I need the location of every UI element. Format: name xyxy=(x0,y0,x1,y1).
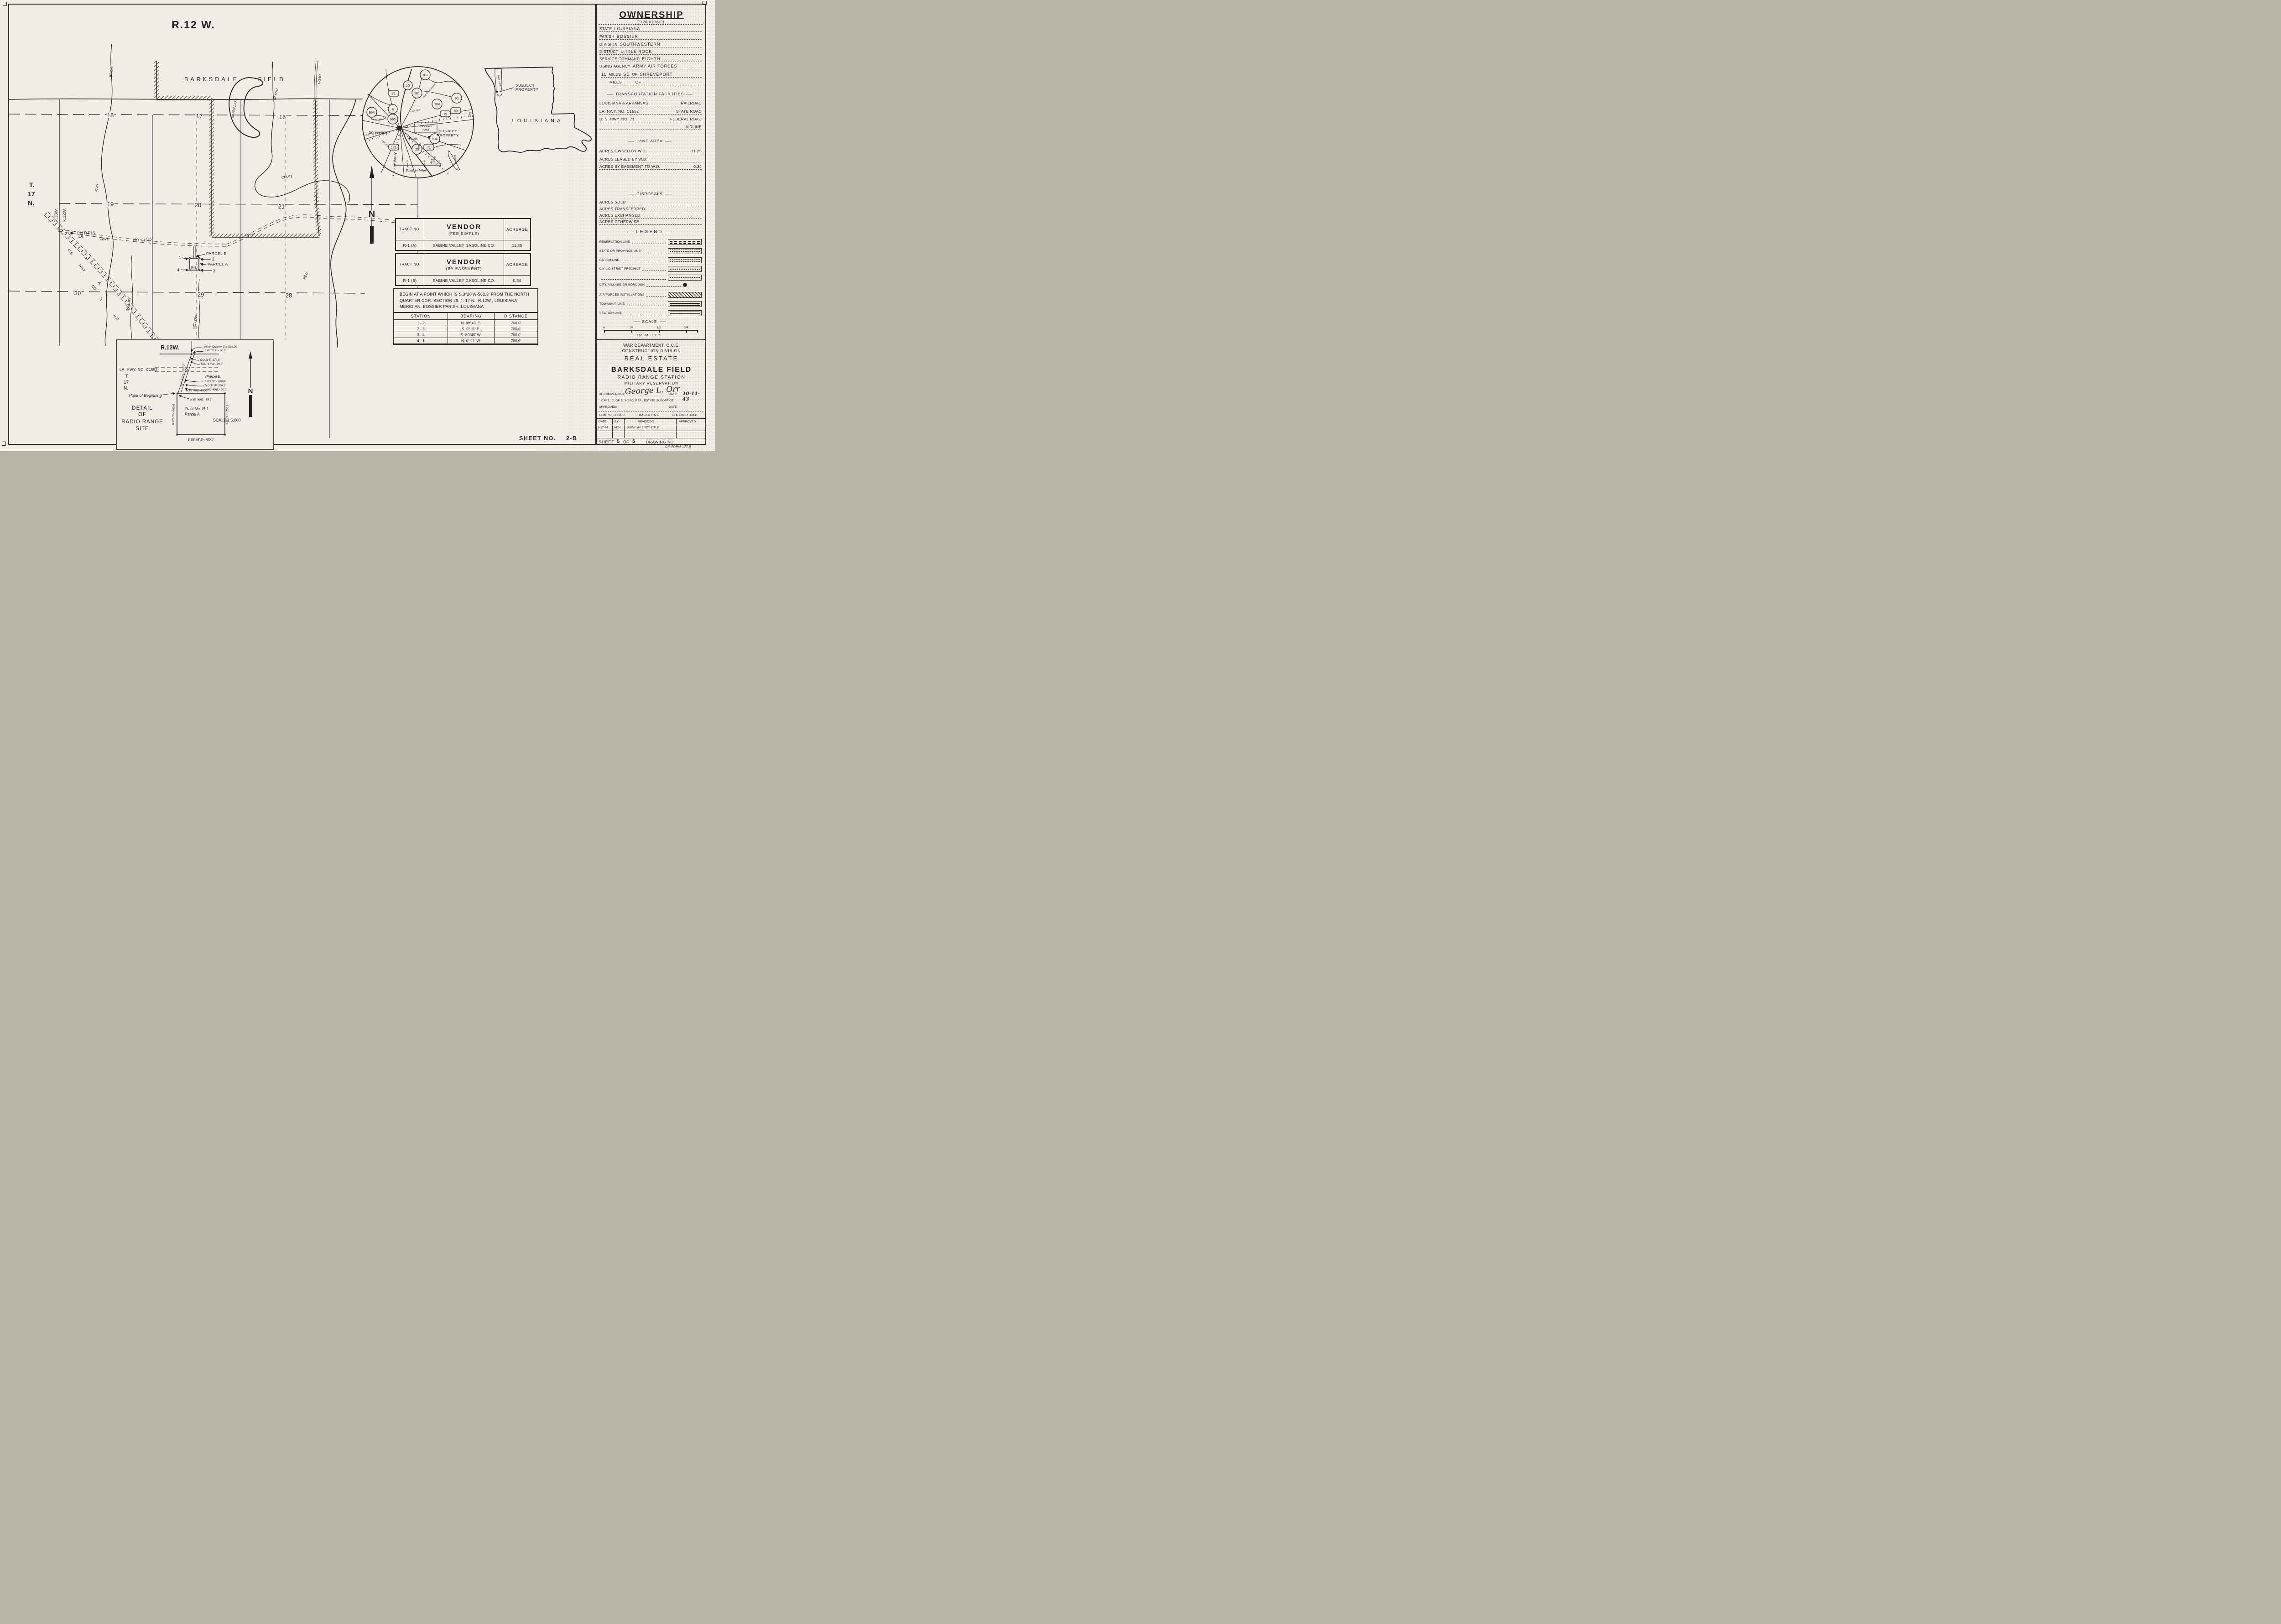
la-hwy-label: HWY. xyxy=(100,237,109,241)
route-shield-994: 994 xyxy=(369,110,375,115)
land-area-header: LAND AREA xyxy=(636,139,662,143)
distance-cell: 700.0' xyxy=(495,338,537,344)
corner-label: 1 xyxy=(179,255,181,260)
us-hwy-label: HWY. xyxy=(78,264,87,273)
field-label: DIVISION xyxy=(599,42,618,47)
field-label: DISTRICT xyxy=(599,49,618,54)
construction-division-line: CONSTRUCTION DIVISION xyxy=(597,349,706,353)
detail-inset: R.12W. North Quarter Cor.Sec.29 S.88°21'… xyxy=(116,340,274,449)
section-number: 18 xyxy=(107,112,114,119)
field-label: USING AGENCY xyxy=(599,64,630,68)
township-label: 17 xyxy=(28,190,35,198)
type-of-map-subtitle: (TYPE OF MAP) xyxy=(599,21,703,25)
detail-tract-label: Parcel A xyxy=(185,412,200,416)
of-word: OF xyxy=(632,72,637,77)
disposal-label: ACRES OTHERWISE xyxy=(599,219,639,224)
sheet-number-value: 5 xyxy=(617,439,620,444)
detail-annotation: S.0°11'E.-274.5' xyxy=(200,358,221,362)
field-value: SOUTHWESTERN xyxy=(620,42,661,47)
disposal-label: ACRES TRANSFERRED xyxy=(599,207,645,211)
land-area-header-row: LAND AREA xyxy=(597,139,703,143)
distance-miles-value: 11 xyxy=(601,72,606,77)
detail-bearing-left: N.0°11'W.-700.0' xyxy=(171,403,176,425)
legend-header-row: LEGEND xyxy=(597,229,703,234)
disposal-label: ACRES SOLD xyxy=(599,200,625,204)
detail-township-label: T. xyxy=(125,374,129,379)
metes-description: BEGIN AT A POINT WHICH IS S.3°20'W-563.3… xyxy=(394,289,537,312)
land-area-label: ACRES LEASED BY W.D. xyxy=(599,157,647,161)
corner-label: 3 xyxy=(213,269,215,273)
bearing-cell: N. 89°49' E. xyxy=(448,320,495,326)
military-reservation-line: MILITARY RESERVATION xyxy=(597,381,706,385)
vendor-fee-simple-table: TRACT NO. VENDOR (FEE SIMPLE) ACREAGE R-… xyxy=(395,218,531,251)
field-label: STATE xyxy=(599,26,612,31)
section-number: 21 xyxy=(278,203,285,210)
transport-type: RAILROAD xyxy=(681,101,702,105)
revisions-approved-header: APPROVED xyxy=(679,420,696,423)
real-estate-title: REAL ESTATE xyxy=(597,355,706,362)
distance-cell: 700.0' xyxy=(495,320,537,326)
of-word: OF xyxy=(635,80,641,84)
acreage-cell: 0.34 xyxy=(504,276,530,285)
approved-label: APPROVED: xyxy=(599,406,617,409)
distance-cell: 700.0' xyxy=(495,332,537,338)
acreage-cell: 11.25 xyxy=(504,240,530,250)
legend-label: STATE OR PROVINCE LINE xyxy=(599,250,641,253)
township-label: T. xyxy=(29,181,34,188)
revision-date: 3-17-44 xyxy=(598,426,608,429)
railroad-label: A. xyxy=(97,281,102,286)
vendor-header-sub: (FEE SIMPLE) xyxy=(448,231,479,236)
flat-label: FLAT xyxy=(94,182,100,192)
vendor-cell: SABINE VALLEY GASOLINE CO. xyxy=(424,276,504,285)
bayou-label: BAYOU xyxy=(273,88,279,100)
corner-label: 2 xyxy=(212,257,214,261)
sheet-no-value: 2-B xyxy=(566,435,578,442)
field-value: LOUISIANA xyxy=(615,26,641,31)
us-hwy-label: NO. xyxy=(90,284,98,292)
disposal-label: ACRES EXCHANGED xyxy=(599,213,640,218)
section-number: 16 xyxy=(279,114,286,120)
vendor-cell: SABINE VALLEY GASOLINE CO. xyxy=(424,240,504,250)
field-value: LITTLE ROCK xyxy=(620,49,652,54)
signature-underline xyxy=(599,398,703,398)
detail-bearing-bottom: S.89°49'W.- 700.0' xyxy=(187,438,214,442)
disposals-header: DISPOSALS xyxy=(636,192,663,196)
revision-text: USING AGENCY TITLE xyxy=(627,426,659,429)
tract-label: R-1 xyxy=(191,266,196,270)
barksdale-field-label: Barksdale xyxy=(419,125,432,128)
range-left-label: R.13W. xyxy=(54,208,59,222)
land-area-value: 0.34 xyxy=(693,164,702,169)
us-hwy-label: U.S. xyxy=(67,248,74,256)
section-number: 20 xyxy=(195,202,201,208)
louisiana-label: LOUISIANA xyxy=(512,118,563,124)
sheet-total-value: 5 xyxy=(632,439,635,444)
compiled-row: COMPILED F.A.C. TRACED F.A.C. CHECKED B.… xyxy=(597,412,706,419)
approved-underline xyxy=(599,411,703,411)
installation-title: BARKSDALE FIELD xyxy=(597,366,706,374)
approved-date-label: DATE: xyxy=(669,406,678,409)
willow-label: WILLOW xyxy=(192,314,198,329)
detail-scale-label: SCALE 1:5,000 xyxy=(213,418,241,422)
revisions-table: DATE BY REVISIONS APPROVED 3-17-44 HEN U… xyxy=(597,419,706,438)
legend-label: PARISH LINE xyxy=(599,259,619,262)
red-river xyxy=(331,99,356,348)
vendor-header-title: VENDOR xyxy=(447,259,481,265)
sheet-of-row: SHEET 5 OF 5 DRAWING NO. xyxy=(597,438,706,445)
transport-name: U. S. HWY. NO. 71 xyxy=(599,117,635,121)
detail-north-label: N xyxy=(248,387,253,395)
section-number: 19 xyxy=(107,201,114,208)
map-labels: R.12 W. BARKSDALE FIELD T. 17 N. R.13W. … xyxy=(28,19,322,329)
acreage-header: ACREAGE xyxy=(504,254,530,276)
detail-township-label: 17 xyxy=(124,380,129,385)
willow-label: WILLOW xyxy=(125,297,131,312)
corner-label: 4 xyxy=(177,268,179,272)
detail-title: SITE xyxy=(135,426,149,432)
survey-sheet: N R.12 W. BARKSDALE FIELD T. 17 N. R.13W… xyxy=(0,0,715,451)
distance-line-blank: MILES OF xyxy=(609,80,702,85)
state-province-line-symbol xyxy=(668,248,702,254)
parish-line-symbol xyxy=(668,257,702,263)
land-area-label: ACRES OWNED BY W.D. xyxy=(599,149,647,153)
north-label: N xyxy=(369,209,375,219)
subject-property-label-state: SUBJECT xyxy=(516,83,535,88)
la-a-railroad xyxy=(46,213,168,355)
land-area-value: 11.25 xyxy=(692,149,702,153)
detail-range-label: R.12W. xyxy=(161,344,179,351)
field-label: PARISH xyxy=(599,34,615,39)
legend-scale-bar: 0 1/4 1/2 3/4 xyxy=(604,326,698,331)
section-number: 30 xyxy=(74,290,81,297)
route-shield-181: 181 xyxy=(414,91,420,95)
section-number: 17 xyxy=(196,113,203,120)
transportation-header: TRANSPORTATION FACILITIES xyxy=(615,92,684,96)
bearing-cell: S. 89°49' W. xyxy=(448,332,495,338)
panel-divider xyxy=(597,339,706,341)
ic-rr-label: I.C. R.R. xyxy=(442,116,450,119)
willow-stream-2 xyxy=(198,279,200,348)
barksdale-field-label: Field xyxy=(422,129,429,132)
tract-no-header: TRACT NO. xyxy=(396,219,424,240)
scale-tick: 10 xyxy=(437,161,441,163)
legend-header: LEGEND xyxy=(636,229,663,234)
scale-tick-label: 3/4 xyxy=(684,326,688,329)
cross-lake-label: Cross Lake xyxy=(371,118,383,121)
revisions-header: REVISIONS xyxy=(638,420,654,423)
metes-and-bounds-block: BEGIN AT A POINT WHICH IS S.3°20'W-563.3… xyxy=(393,288,538,345)
signer-title-line: CAPT., C. OF E., HEAD, REAL ESTATE SUBOF… xyxy=(601,399,673,402)
acreage-header: ACREAGE xyxy=(504,219,530,240)
station-cell: 2 - 3 xyxy=(394,326,448,332)
legend-scale-header: SCALE xyxy=(642,319,657,324)
recommended-label: RECOMMENDED: xyxy=(599,393,625,396)
drawing-no-label: DRAWING NO. xyxy=(646,440,675,444)
route-shield-79: 79 xyxy=(443,112,447,116)
vendor-header: VENDOR (FEE SIMPLE) xyxy=(424,219,504,240)
shreveport-dot xyxy=(397,126,402,131)
subject-property-dot-state xyxy=(496,91,498,93)
section-line-symbol xyxy=(668,310,702,316)
bearing-header: BEARING xyxy=(448,313,495,320)
route-shield-171: 171 xyxy=(391,146,397,150)
legend-label: CIVIL DISTRICT PRECINCT xyxy=(599,267,641,271)
detail-annotation: N.0°11'W.-294.2' xyxy=(205,384,226,387)
curtis-vicinity-label: Curtis xyxy=(411,138,418,141)
route-shield-8: 8 xyxy=(392,107,394,111)
route-shield-995: 995 xyxy=(390,117,396,121)
field-label: FIELD xyxy=(258,76,286,83)
subject-property-label-state: PROPERTY xyxy=(516,88,539,92)
checked-label: CHECKED B.R.P. xyxy=(672,413,698,417)
distance-header: DISTANCE xyxy=(495,313,537,320)
transport-type: AIRLINE xyxy=(686,125,702,129)
curtis-dot-vicinity xyxy=(408,137,410,139)
parcel-a-label: PARCEL A xyxy=(208,262,228,266)
civil-district-symbol xyxy=(668,266,702,272)
detail-annotation: S.81°17'W.- 30.5' xyxy=(201,362,223,366)
detail-annotation: North Quarter Cor.Sec.29 xyxy=(204,345,237,349)
revisions-by-header: BY xyxy=(615,420,619,423)
of-word: OF xyxy=(623,440,629,444)
flat-river xyxy=(101,44,113,346)
detail-annotation: S.0°11'E.- 286.8' xyxy=(204,380,226,383)
date-label: DATE: xyxy=(669,393,678,396)
traced-label: TRACED F.A.C. xyxy=(637,413,660,417)
station-table: STATION BEARING DISTANCE 1 - 2 N. 89°49'… xyxy=(394,312,537,344)
station-header: STATION xyxy=(394,313,448,320)
sheet-no-label: SHEET NO. xyxy=(519,435,556,442)
vendor-header-title: VENDOR xyxy=(447,224,481,230)
tract-no-header: TRACT NO. xyxy=(396,254,424,276)
station-cell: 3 - 4 xyxy=(394,332,448,338)
city-dot-symbol xyxy=(683,283,687,287)
legend-label: SECTION LINE xyxy=(599,312,622,315)
reservation-boundary xyxy=(156,61,319,237)
miles-word: MILES xyxy=(609,80,622,84)
township-label: N. xyxy=(28,199,34,207)
tract-cell: R-1 (A) xyxy=(396,240,424,250)
tract-cell: R-1 (B) xyxy=(396,276,424,285)
road-label: ROAD xyxy=(317,74,322,84)
louisiana-map: BOSSIER SUBJECT PROPERTY LOUISIANA xyxy=(485,67,591,152)
section-number: 29 xyxy=(198,291,204,298)
disposals-header-row: DISPOSALS xyxy=(597,192,703,196)
legend-label: CITY, VILLAGE OR BOROUGH xyxy=(599,283,645,286)
ownership-panel: OWNERSHIP (TYPE OF MAP) STATELOUISIANA P… xyxy=(595,4,706,445)
route-shield-71: 71 xyxy=(392,92,396,96)
river-label: RIVER xyxy=(108,66,114,78)
date-value: 10-11-43 xyxy=(682,391,706,402)
field-value: ARMY AIR FORCES xyxy=(633,64,677,68)
place-value: SHREVEPORT xyxy=(640,72,673,77)
section-number: 28 xyxy=(286,292,292,299)
detail-bearing-top: N.89°49'E.-700.0' xyxy=(186,389,209,392)
route-shield-71: 71 xyxy=(427,146,431,150)
legend-label: TOWNSHIP LINE xyxy=(599,302,625,306)
roads xyxy=(44,212,395,357)
sheet-word: SHEET xyxy=(599,440,615,444)
us-hwy-label: 71 xyxy=(98,296,104,302)
vendor-header-sub: (BY EASEMENT) xyxy=(446,266,482,271)
air-forces-hatch-symbol xyxy=(668,292,702,298)
transport-type: FEDERAL ROAD xyxy=(670,117,702,121)
detail-annotation: N.89°49'E.- 30.0' xyxy=(205,388,227,391)
scale-in-miles-label: Scale in Miles xyxy=(406,168,427,172)
scale-tick-label: 1/2 xyxy=(656,326,661,329)
detail-hwy-label: LA. HWY. NO. C1552 xyxy=(120,368,158,372)
ownership-title: OWNERSHIP xyxy=(597,10,706,21)
route-shield-90: 90 xyxy=(455,96,458,100)
compiled-label: COMPILED F.A.C. xyxy=(599,413,625,417)
range-right-label: R.12W. xyxy=(62,208,67,222)
legend-label: RESERVATION LINE xyxy=(599,240,630,244)
distance-cell: 700.0' xyxy=(495,326,537,332)
miles-word: MILES xyxy=(609,72,621,77)
la-hwy-label: NO. C1552 xyxy=(133,238,152,242)
chute-label: CHUTE xyxy=(281,174,294,180)
detail-annotation: N.89°49'E.- 65.0' xyxy=(190,398,212,401)
detail-title: DETAIL xyxy=(132,406,152,411)
parcel-b-label: PARCEL B xyxy=(206,251,227,256)
vendor-header: VENDOR (BY EASEMENT) xyxy=(424,254,504,276)
field-value: EIGHTH xyxy=(642,57,660,61)
war-department-line: WAR DEPARTMENT, O.C.E. xyxy=(597,343,706,348)
detail-annotation: S.88°21'E.- 30.5' xyxy=(204,349,226,352)
detail-tract-label: Tract No. R-1 xyxy=(185,406,208,411)
range-label: R.12 W. xyxy=(172,19,215,31)
reservation-line-symbol xyxy=(668,239,702,245)
railroad-label: R.R. xyxy=(112,314,120,322)
route-shield-80: 80 xyxy=(454,109,458,113)
unlabeled-line-symbol xyxy=(668,275,702,281)
station-title: RADIO RANGE STATION xyxy=(597,375,706,380)
vendor-easement-table: TRACT NO. VENDOR (BY EASEMENT) ACREAGE R… xyxy=(395,253,531,286)
transport-name: LOUISIANA & ARKANSAS xyxy=(599,101,648,105)
red-label: RED xyxy=(302,271,309,280)
detail-township-label: N. xyxy=(124,386,128,391)
route-shield-184: 184 xyxy=(434,102,440,106)
legend-label: AIR FORCES INSTALLATIONS xyxy=(599,293,645,297)
parcel-r1 xyxy=(181,246,212,271)
bearing-cell: S. 0° 11' E. xyxy=(448,326,495,332)
route-shield-182: 182 xyxy=(422,73,428,77)
field-label: SERVICE COMMAND xyxy=(599,57,640,61)
revision-by: HEN xyxy=(614,426,620,429)
form-number: CR-FORM-177.B xyxy=(665,445,691,448)
scale-tick-label: 1/4 xyxy=(629,326,633,329)
bossier-label: BOSSIER xyxy=(497,75,501,87)
station-cell: 1 - 2 xyxy=(394,320,448,326)
sheet-number: SHEET NO. 2-B xyxy=(519,435,578,442)
scale-tick-label: 0 xyxy=(603,326,605,329)
la-hwy-label: LA. xyxy=(78,234,84,239)
field-value: BOSSIER xyxy=(617,34,638,39)
chute-bayou xyxy=(255,62,350,203)
transport-type: STATE ROAD xyxy=(676,109,702,114)
revisions-date-header: DATE xyxy=(599,420,606,423)
land-area-label: ACRES BY EASEMENT TO W.D. xyxy=(599,164,660,169)
distance-line: 11 MILES SE OF SHREVEPORT xyxy=(601,72,702,78)
scale-units-label: IN MILES xyxy=(597,333,703,337)
railroad-label: L. xyxy=(84,256,89,261)
legend-scale-header-row: SCALE xyxy=(597,319,703,324)
detail-title: RADIO RANGE xyxy=(121,419,163,425)
vicinity-map: 182 10 181 90 184 8 994 995 934 20 71 80… xyxy=(362,67,474,178)
subject-property-label: PROPERTY xyxy=(437,133,459,137)
township-line-symbol xyxy=(668,301,702,307)
subject-property-label: SUBJECT xyxy=(439,129,457,133)
transport-name: LA. HWY. NO. C1552 xyxy=(599,109,639,114)
point-of-beginning-label: Point of Beginning xyxy=(129,393,162,398)
direction-value: SE xyxy=(623,72,630,77)
detail-title: OF xyxy=(138,412,146,417)
route-shield-10: 10 xyxy=(406,83,410,88)
station-cell: 4 - 1 xyxy=(394,338,448,344)
route-shield-934: 934 xyxy=(432,137,438,141)
bearing-cell: N. 0° 11' W. xyxy=(448,338,495,344)
field-label: BARKSDALE xyxy=(184,76,239,83)
detail-parcel-b-label: (Parcel B) xyxy=(205,375,222,379)
transportation-header-row: TRANSPORTATION FACILITIES xyxy=(597,92,703,96)
curtis-dot xyxy=(70,232,73,234)
